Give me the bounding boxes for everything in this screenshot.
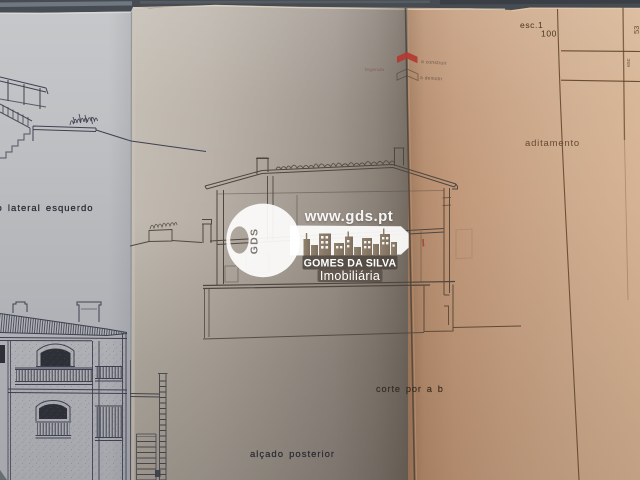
svg-text:legenda: legenda — [365, 67, 384, 72]
svg-text:a demolir: a demolir — [420, 75, 443, 83]
svg-text:GDS: GDS — [249, 228, 261, 254]
svg-text:GOMES DA SILVA: GOMES DA SILVA — [304, 258, 397, 270]
svg-text:www.gds.pt: www.gds.pt — [304, 208, 394, 225]
svg-text:100: 100 — [541, 29, 557, 39]
svg-text:esc: esc — [626, 58, 632, 67]
svg-text:corte por a b: corte por a b — [376, 384, 444, 394]
svg-text:esc.1: esc.1 — [520, 20, 543, 30]
svg-text:aditamento: aditamento — [525, 138, 580, 149]
svg-text:alçado posterior: alçado posterior — [250, 449, 335, 460]
svg-text:53: 53 — [632, 26, 640, 34]
svg-text:a construir: a construir — [421, 59, 447, 67]
svg-text:Imobiliária: Imobiliária — [320, 269, 380, 283]
svg-text:o lateral esquerdo: o lateral esquerdo — [0, 203, 94, 214]
